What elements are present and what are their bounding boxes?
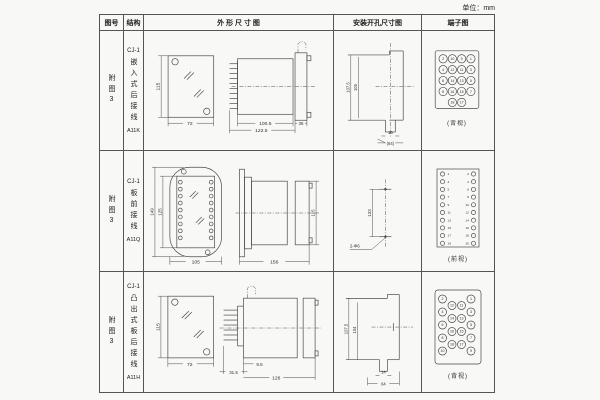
terminal-number: 17 bbox=[448, 234, 452, 238]
terminal-number: 9 bbox=[448, 203, 450, 207]
dim-front-inner-h: 125 bbox=[157, 208, 162, 216]
row1-view-label: (背视) bbox=[447, 119, 467, 127]
terminal-number: 7 bbox=[470, 90, 472, 94]
dim-front-width: 105 bbox=[192, 260, 201, 266]
terminal-number: 5 bbox=[470, 323, 472, 327]
terminal-number: 6 bbox=[442, 79, 444, 83]
terminal-number: 18 bbox=[466, 234, 470, 238]
terminal-number: 15 bbox=[460, 330, 464, 334]
row1-code: A11K bbox=[127, 128, 140, 134]
dim-total-len: 122.5 bbox=[255, 128, 268, 134]
terminal-number: 12 bbox=[450, 68, 454, 72]
header-terminal-label: 端子图 bbox=[448, 18, 469, 28]
row2-code: A11Q bbox=[127, 237, 141, 243]
terminal-number: 3 bbox=[448, 180, 450, 184]
terminal-number: 8 bbox=[442, 336, 444, 340]
dim-outer-h: 107.5 bbox=[343, 323, 348, 334]
row1-structure: CJ-1 嵌入式后接线 A11K bbox=[124, 31, 144, 151]
terminal-number: 15 bbox=[460, 90, 464, 94]
row2-structure: CJ-1 板前接线 A11Q bbox=[124, 151, 144, 272]
terminal-number: 15 bbox=[448, 226, 452, 230]
row3-side-view: 9.5 31.5 126 bbox=[220, 286, 321, 382]
dim-pin-len: 31.5 bbox=[229, 370, 238, 375]
unit-label: 单位：mm bbox=[99, 3, 495, 13]
row3-model: CJ-1 bbox=[127, 284, 140, 290]
row2-fig-no-label: 附图3 bbox=[108, 195, 115, 228]
header-install: 安装开孔尺寸图 bbox=[334, 15, 422, 31]
dim-holes-label: 2-Φ6 bbox=[350, 244, 360, 249]
header-outline: 外 形 尺 寸 图 bbox=[144, 15, 334, 31]
terminal-number: 19 bbox=[448, 241, 452, 245]
dim-offset: 9.5 bbox=[256, 362, 263, 367]
row1-side-view: 100.5 35 122.5 bbox=[230, 42, 315, 134]
dim-body-len: 100.5 bbox=[259, 121, 272, 127]
terminal-number: 3 bbox=[470, 68, 472, 72]
row2-holes: 133 2-Φ6 bbox=[350, 179, 392, 249]
dim-span: 64 bbox=[381, 381, 386, 386]
row1-install-drawing: 107.5 105 16 (64) bbox=[334, 31, 422, 151]
row3-terminal-drawing: 2 4 6 8 10 12 14 16 18 11 13 15 17 1 3 5… bbox=[422, 272, 494, 392]
terminal-number: 11 bbox=[460, 68, 464, 72]
row1-fig-no-label: 附图3 bbox=[108, 74, 115, 107]
dim-inner-h: 105 bbox=[353, 83, 358, 91]
terminal-number: 14 bbox=[466, 218, 470, 222]
terminal-number: 1 bbox=[470, 297, 472, 301]
terminal-number: 4 bbox=[467, 180, 469, 184]
terminal-number: 3 bbox=[470, 310, 472, 314]
terminal-number: 11 bbox=[460, 304, 464, 308]
terminal-number: 8 bbox=[467, 195, 469, 199]
dim-front-width: 72 bbox=[187, 121, 193, 127]
dim-front-width: 72 bbox=[187, 362, 193, 368]
terminal-number: 13 bbox=[460, 317, 464, 321]
row1-terminal-drawing: 2 10 9 1 4 12 11 3 6 14 13 5 8 16 15 7 1… bbox=[422, 31, 494, 151]
terminal-number: 16 bbox=[466, 226, 470, 230]
row2-side-view: 156 115 bbox=[236, 169, 320, 266]
row1-mounting: 嵌入式后接线 bbox=[130, 58, 137, 124]
dim-hole-w: 14 bbox=[381, 370, 386, 375]
row1-cutout: 107.5 105 16 (64) bbox=[345, 43, 415, 146]
terminal-number: 17 bbox=[460, 343, 464, 347]
header-fig-no: 图号 bbox=[100, 15, 124, 31]
row3-code: A11H bbox=[127, 375, 140, 381]
terminal-number: 18 bbox=[450, 101, 454, 105]
row3-fig-no-label: 附图3 bbox=[108, 316, 115, 349]
terminal-number: 9 bbox=[470, 349, 472, 353]
row2-fig-no: 附图3 bbox=[100, 151, 124, 272]
row2-terminal-drawing: 1 3 5 7 9 11 13 15 17 19 2 4 6 8 10 12 1… bbox=[422, 151, 494, 272]
row2-terminal-grid: 1 3 5 7 9 11 13 15 17 19 2 4 6 8 10 12 1… bbox=[437, 169, 479, 247]
header-structure-label: 结构 bbox=[127, 18, 141, 28]
terminal-number: 18 bbox=[450, 343, 454, 347]
terminal-number: 2 bbox=[442, 57, 444, 61]
terminal-number: 7 bbox=[470, 336, 472, 340]
terminal-number: 2 bbox=[467, 172, 469, 176]
row3-structure: CJ-1 凸出式板后接线 A11H bbox=[124, 272, 144, 392]
terminal-number: 12 bbox=[466, 211, 470, 215]
header-fig-no-label: 图号 bbox=[105, 18, 119, 28]
header-terminal: 端子图 bbox=[422, 15, 494, 31]
terminal-number: 6 bbox=[442, 323, 444, 327]
terminal-number: 6 bbox=[467, 188, 469, 192]
terminal-number: 4 bbox=[442, 68, 444, 72]
row3-terminal-grid: 2 4 6 8 10 12 14 16 18 11 13 15 17 1 3 5… bbox=[435, 290, 481, 364]
terminal-number: 1 bbox=[448, 172, 450, 176]
terminal-number: 8 bbox=[442, 90, 444, 94]
header-outline-label: 外 形 尺 寸 图 bbox=[217, 18, 260, 28]
row3-outline-drawing: 115 72 9.5 31.5 bbox=[144, 272, 334, 392]
row1-front-view: 115 72 bbox=[156, 56, 214, 127]
dim-side-len: 156 bbox=[270, 260, 279, 266]
dim-side-height: 115 bbox=[311, 209, 316, 217]
dim-front-height: 115 bbox=[155, 323, 161, 331]
row1-outline-drawing: 115 72 100.5 35 bbox=[144, 31, 334, 151]
row2-view-label: (前视) bbox=[448, 255, 468, 263]
terminal-number: 12 bbox=[450, 304, 454, 308]
row1-terminal-grid: 2 10 9 1 4 12 11 3 6 14 13 5 8 16 15 7 1… bbox=[435, 51, 479, 109]
row3-mounting: 凸出式板后接线 bbox=[130, 294, 137, 371]
row2-install-drawing: 133 2-Φ6 bbox=[334, 151, 422, 272]
terminal-number: 1 bbox=[470, 57, 472, 61]
row3-cutout: 107.5 104 14 64 bbox=[343, 294, 413, 386]
row3-fig-no: 附图3 bbox=[100, 272, 124, 392]
dim-inner-h: 104 bbox=[352, 326, 357, 334]
terminal-number: 10 bbox=[441, 349, 445, 353]
dim-body-len: 126 bbox=[272, 376, 281, 382]
terminal-number: 10 bbox=[466, 203, 470, 207]
row2-mounting: 板前接线 bbox=[130, 189, 137, 233]
dim-span: (64) bbox=[387, 141, 395, 146]
row3-install-drawing: 107.5 104 14 64 bbox=[334, 272, 422, 392]
row3-front-view: 115 72 bbox=[155, 296, 213, 368]
terminal-number: 11 bbox=[448, 211, 451, 215]
dim-front-height: 115 bbox=[156, 82, 162, 90]
row2-model: CJ-1 bbox=[127, 179, 140, 185]
terminal-number: 4 bbox=[442, 310, 444, 314]
terminal-number: 5 bbox=[448, 188, 450, 192]
terminal-number: 13 bbox=[460, 79, 464, 83]
terminal-number: 13 bbox=[448, 218, 452, 222]
terminal-number: 16 bbox=[450, 330, 454, 334]
row1-model: CJ-1 bbox=[127, 48, 140, 54]
row2-front-view: 149 125 105 bbox=[149, 167, 221, 265]
terminal-number: 14 bbox=[450, 317, 454, 321]
dim-front-outer-h: 149 bbox=[149, 208, 154, 216]
row3-view-label: (背视) bbox=[448, 372, 468, 380]
terminal-number: 20 bbox=[466, 241, 470, 245]
header-structure: 结构 bbox=[124, 15, 144, 31]
dim-outer-h: 107.5 bbox=[345, 82, 350, 93]
terminal-number: 2 bbox=[442, 297, 444, 301]
spec-table: 图号 结构 外 形 尺 寸 图 安装开孔尺寸图 端子图 附图3 CJ-1 嵌入式… bbox=[99, 14, 495, 393]
dim-flange-depth: 35 bbox=[298, 121, 303, 126]
header-install-label: 安装开孔尺寸图 bbox=[353, 18, 402, 28]
terminal-number: 7 bbox=[448, 195, 450, 199]
terminal-number: 10 bbox=[450, 57, 454, 61]
terminal-number: 16 bbox=[450, 90, 454, 94]
terminal-number: 9 bbox=[461, 57, 463, 61]
row2-outline-drawing: 149 125 105 156 115 bbox=[144, 151, 334, 272]
row1-fig-no: 附图3 bbox=[100, 31, 124, 151]
dim-hole-w: 16 bbox=[388, 130, 393, 135]
terminal-number: 5 bbox=[470, 79, 472, 83]
dim-hole-spacing: 133 bbox=[367, 209, 372, 217]
terminal-number: 14 bbox=[450, 79, 454, 83]
terminal-number: 17 bbox=[460, 101, 464, 105]
